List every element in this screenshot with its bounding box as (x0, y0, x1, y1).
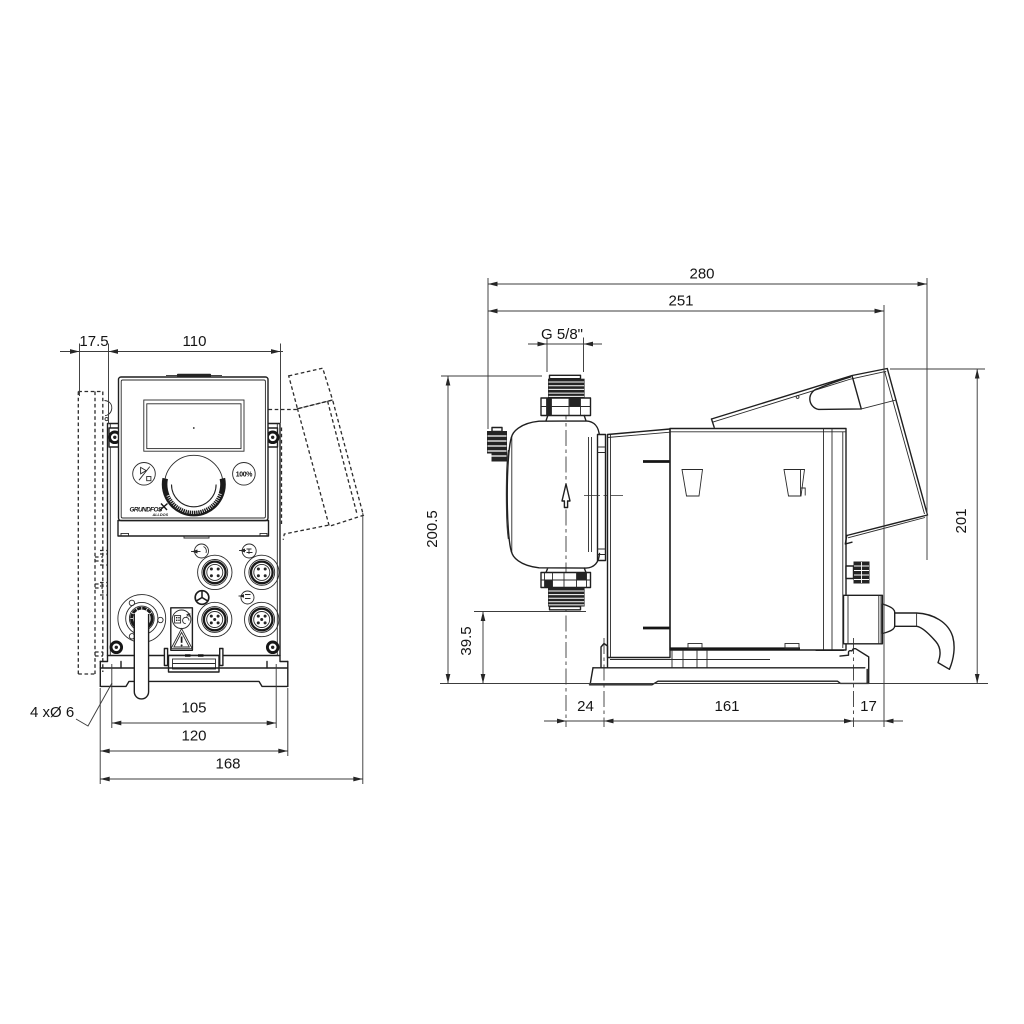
svg-text:17: 17 (860, 698, 877, 715)
svg-text:251: 251 (668, 293, 693, 310)
svg-text:110: 110 (183, 333, 207, 350)
svg-text:105: 105 (181, 700, 206, 717)
svg-text:ALLDOS: ALLDOS (152, 513, 169, 517)
svg-text:200.5: 200.5 (424, 510, 441, 548)
svg-text:100%: 100% (236, 472, 252, 479)
svg-text:201: 201 (953, 508, 970, 533)
svg-text:120: 120 (181, 728, 206, 745)
svg-text:161: 161 (714, 698, 739, 715)
svg-text:17.5: 17.5 (79, 333, 108, 350)
svg-text:168: 168 (215, 756, 240, 773)
svg-text:G 5/8": G 5/8" (541, 326, 583, 343)
svg-text:24: 24 (577, 698, 594, 715)
svg-text:39.5: 39.5 (458, 626, 475, 655)
svg-text:280: 280 (689, 266, 714, 283)
svg-text:4 xØ 6: 4 xØ 6 (30, 704, 74, 721)
